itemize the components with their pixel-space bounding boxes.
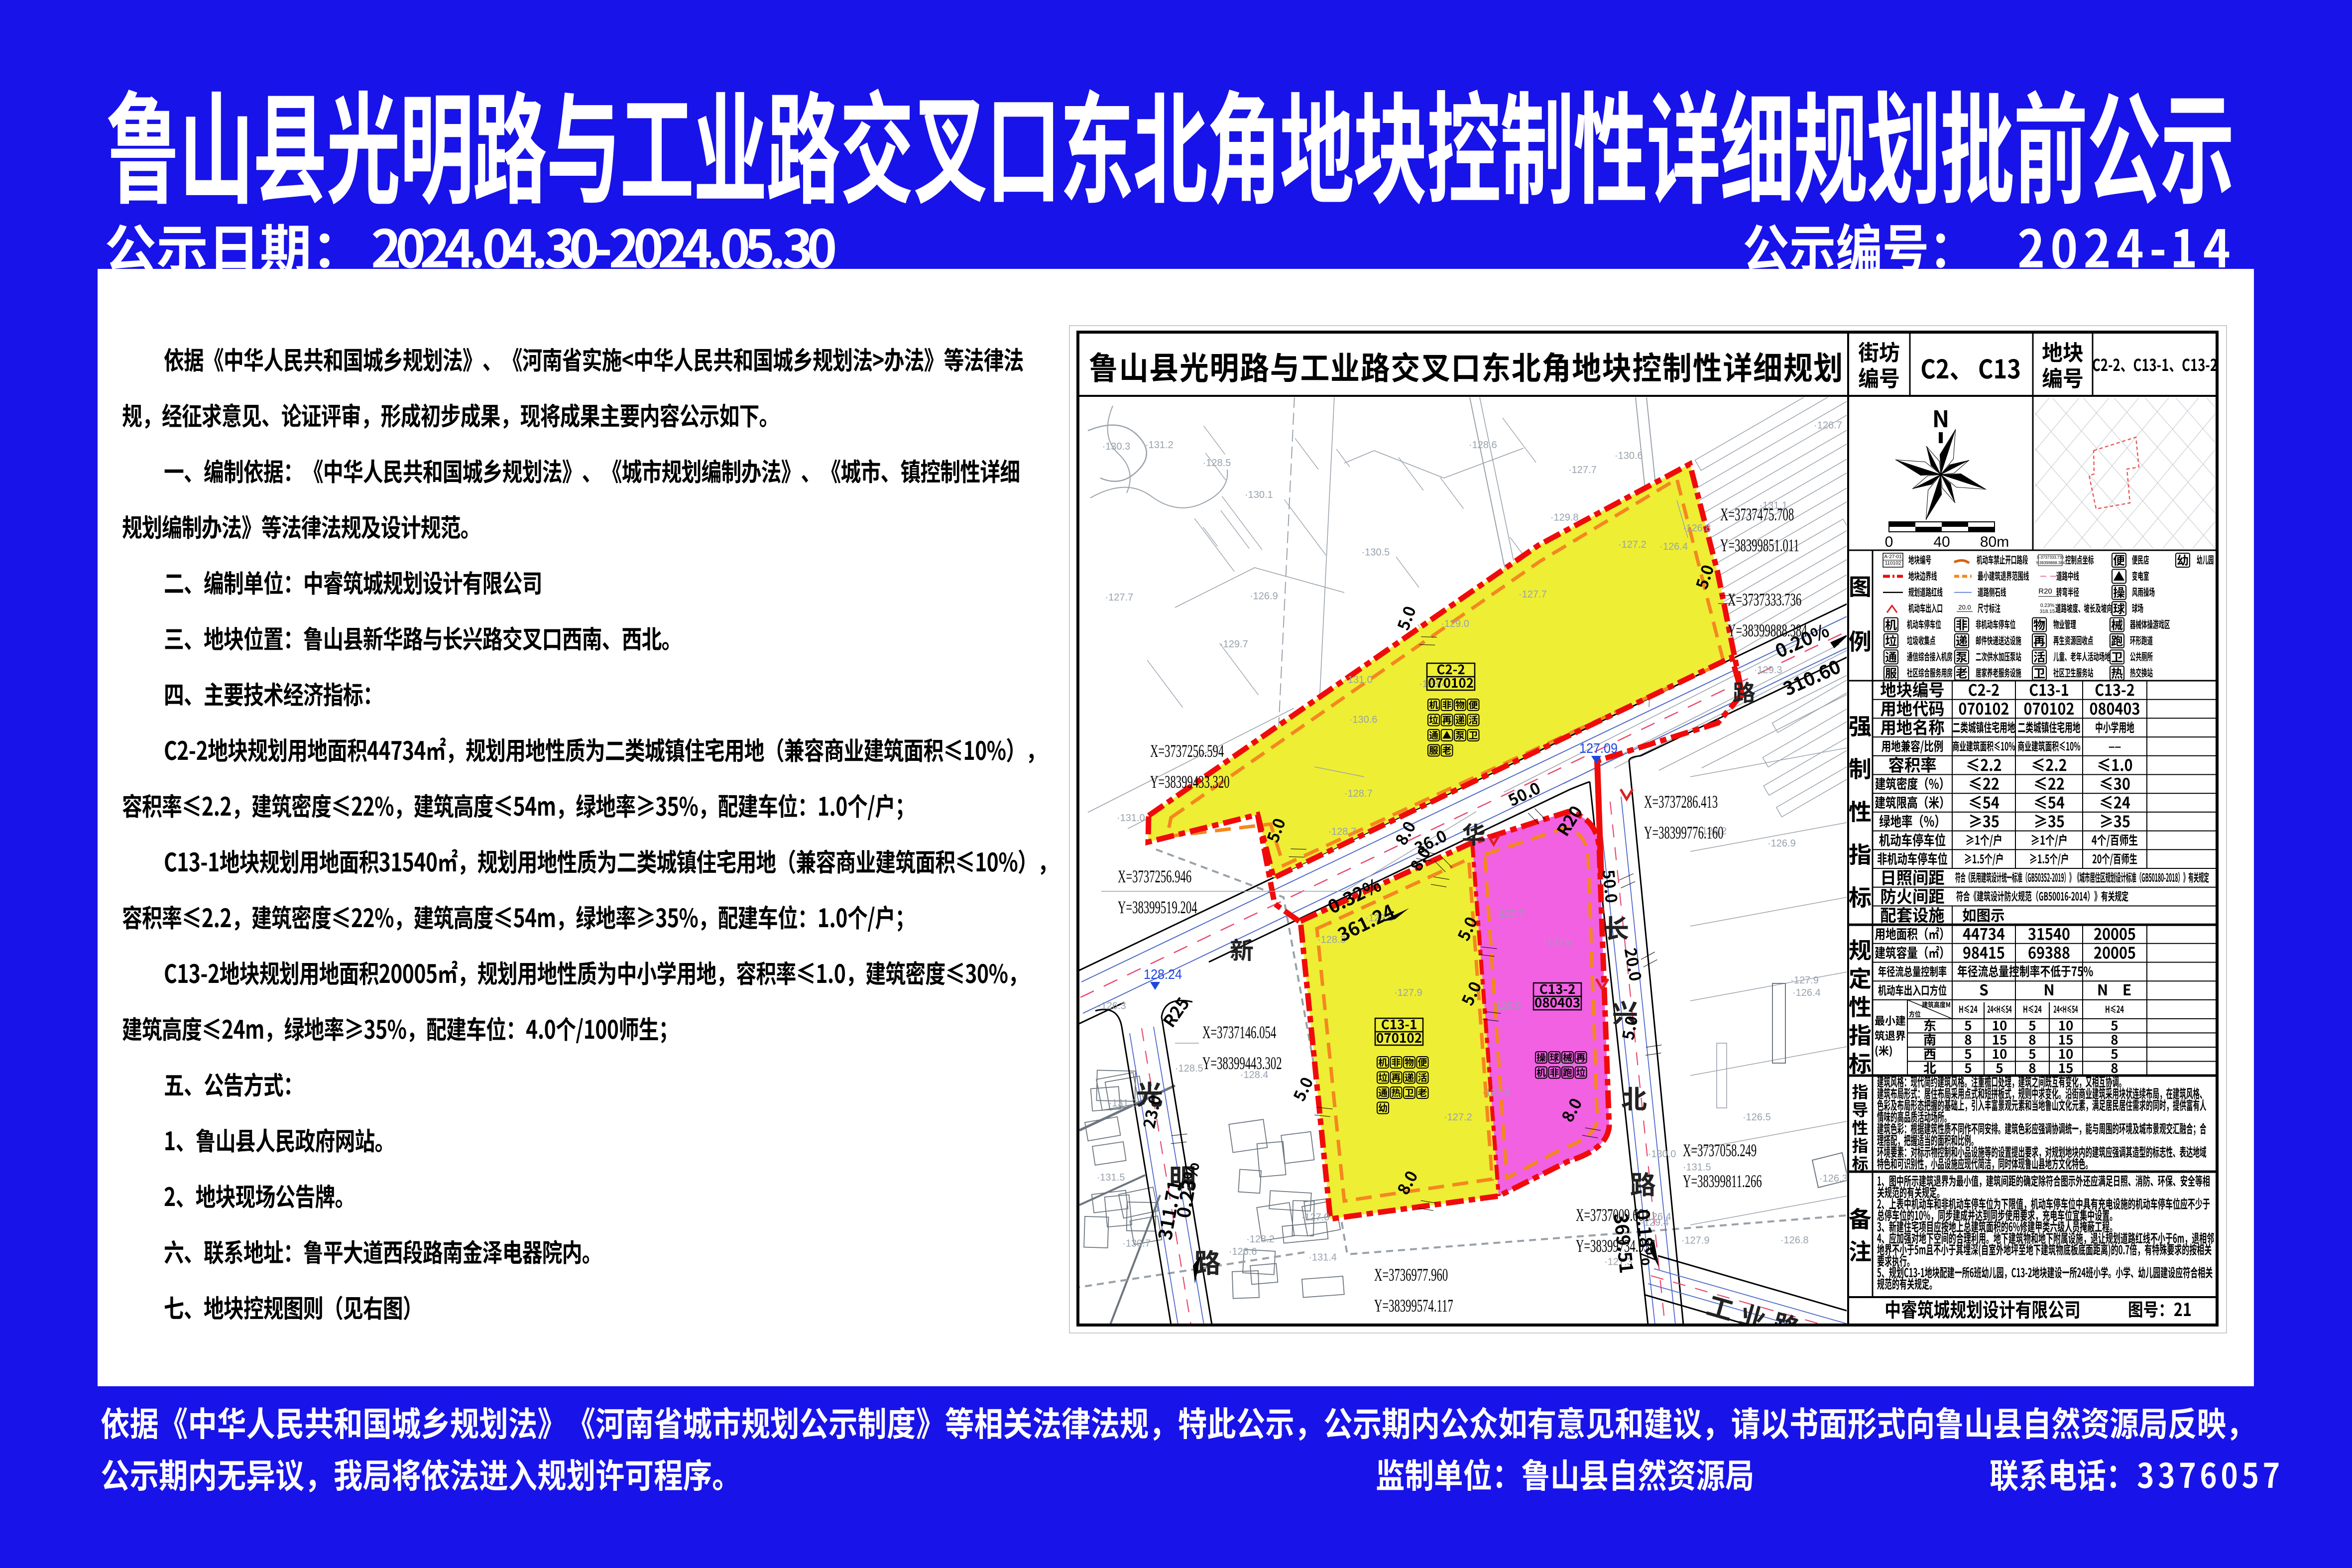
svg-text:X-3737333.736: X-3737333.736 [2037, 555, 2064, 560]
svg-text:Y=38399574.117: Y=38399574.117 [1374, 1296, 1453, 1316]
svg-text:·127.0: ·127.0 [1301, 1212, 1330, 1223]
svg-text:0.23%: 0.23% [2040, 603, 2054, 608]
svg-text:·130.1: ·130.1 [1245, 489, 1273, 500]
svg-text:Y=38399811.266: Y=38399811.266 [1683, 1171, 1762, 1192]
svg-text:·126.3: ·126.3 [1098, 1001, 1126, 1012]
svg-text:·126.8: ·126.8 [1780, 1235, 1809, 1246]
svg-text:Y-38399888.384: Y-38399888.384 [2036, 561, 2065, 565]
svg-text:·126.6: ·126.6 [1229, 1246, 1257, 1257]
svg-text:·129.3: ·129.3 [1754, 665, 1782, 676]
svg-text:·128.9: ·128.9 [1493, 1001, 1521, 1012]
svg-text:X=3737256.946: X=3737256.946 [1118, 866, 1191, 887]
svg-text:Y=38399851.011: Y=38399851.011 [1720, 535, 1799, 556]
svg-text:·131.2: ·131.2 [1109, 1098, 1137, 1109]
svg-text:Y=38399776.160: Y=38399776.160 [1644, 823, 1724, 843]
svg-text:A-27-01: A-27-01 [1884, 554, 1902, 560]
svg-text:·130.0: ·130.0 [1648, 1149, 1676, 1160]
svg-text:·126.9: ·126.9 [1250, 591, 1278, 602]
svg-text:·126.9: ·126.9 [1767, 838, 1796, 849]
svg-text:R20: R20 [2038, 587, 2052, 596]
svg-text:·129.0: ·129.0 [1441, 618, 1469, 629]
svg-text:·126.4: ·126.4 [1792, 987, 1821, 998]
svg-text:·127.9: ·127.9 [1394, 987, 1422, 998]
svg-text:·126.4: ·126.4 [1659, 541, 1688, 552]
svg-text:·130.5: ·130.5 [1362, 547, 1390, 558]
svg-text:·127.9: ·127.9 [1790, 975, 1819, 986]
svg-text:X=3737146.054: X=3737146.054 [1202, 1022, 1276, 1043]
svg-text:0: 0 [1885, 534, 1893, 550]
svg-text:·130.6: ·130.6 [1349, 715, 1378, 725]
svg-text:127.09: 127.09 [1579, 740, 1618, 756]
svg-text:·128.6: ·128.6 [1469, 440, 1497, 451]
svg-text:·131.2: ·131.2 [1145, 440, 1174, 451]
svg-text:·131.5: ·131.5 [1097, 1172, 1125, 1183]
svg-text:X=3737286.413: X=3737286.413 [1644, 792, 1718, 812]
svg-text:·131.0: ·131.0 [1344, 675, 1373, 686]
svg-text:·127.2: ·127.2 [1618, 539, 1646, 550]
svg-text:110102: 110102 [1885, 561, 1901, 566]
svg-text:X=3737058.249: X=3737058.249 [1683, 1140, 1757, 1161]
svg-text:128.24: 128.24 [1144, 966, 1182, 982]
svg-text:·127.2: ·127.2 [1444, 1112, 1472, 1123]
svg-text:·129.7: ·129.7 [1220, 639, 1248, 650]
svg-text:·127.7: ·127.7 [1105, 592, 1133, 603]
svg-text:Y=38399519.204: Y=38399519.204 [1118, 897, 1197, 918]
svg-text:X=3736977.960: X=3736977.960 [1374, 1265, 1448, 1285]
svg-text:·130.6: ·130.6 [1615, 450, 1643, 461]
svg-text:Y=38399443.302: Y=38399443.302 [1202, 1053, 1282, 1074]
svg-text:·131.0: ·131.0 [1117, 813, 1145, 824]
svg-text:·128.7: ·128.7 [1344, 788, 1373, 799]
svg-text:X=3737475.708: X=3737475.708 [1720, 504, 1794, 525]
svg-text:40: 40 [1933, 534, 1950, 550]
svg-text:·127.9: ·127.9 [1681, 1235, 1710, 1246]
svg-text:318.15: 318.15 [2040, 609, 2055, 614]
svg-text:20.0: 20.0 [1958, 603, 1971, 611]
svg-text:·126.3: ·126.3 [1819, 1173, 1848, 1184]
svg-text:·126.7: ·126.7 [1814, 420, 1842, 431]
svg-text:X=3737256.594: X=3737256.594 [1150, 741, 1224, 761]
svg-text:·127.5: ·127.5 [1543, 938, 1572, 949]
svg-text:·128.3: ·128.3 [1317, 935, 1346, 946]
svg-text:·128.5: ·128.5 [1175, 1063, 1203, 1074]
svg-text:X=3737333.736: X=3737333.736 [1728, 590, 1801, 610]
svg-text:·128.5: ·128.5 [1203, 458, 1231, 469]
svg-text:·130.3: ·130.3 [1102, 441, 1130, 452]
svg-text:·126.5: ·126.5 [1743, 1112, 1771, 1123]
svg-text:·127.7: ·127.7 [1519, 589, 1547, 600]
svg-text:·127.7: ·127.7 [1568, 465, 1597, 476]
svg-text:·129.8: ·129.8 [1550, 512, 1579, 523]
svg-text:·130.7: ·130.7 [1122, 1238, 1151, 1249]
svg-text:Y=38399433.320: Y=38399433.320 [1150, 772, 1230, 792]
svg-text:·126.8: ·126.8 [1683, 523, 1711, 534]
svg-text:·128.2: ·128.2 [1246, 1234, 1275, 1245]
svg-text:·127.7: ·127.7 [1496, 909, 1525, 920]
svg-text:·131.4: ·131.4 [1308, 1252, 1337, 1263]
svg-text:·127.6: ·127.6 [1482, 1087, 1511, 1098]
svg-text:·128.7: ·128.7 [1328, 827, 1356, 838]
svg-text:80m: 80m [1980, 534, 2009, 550]
